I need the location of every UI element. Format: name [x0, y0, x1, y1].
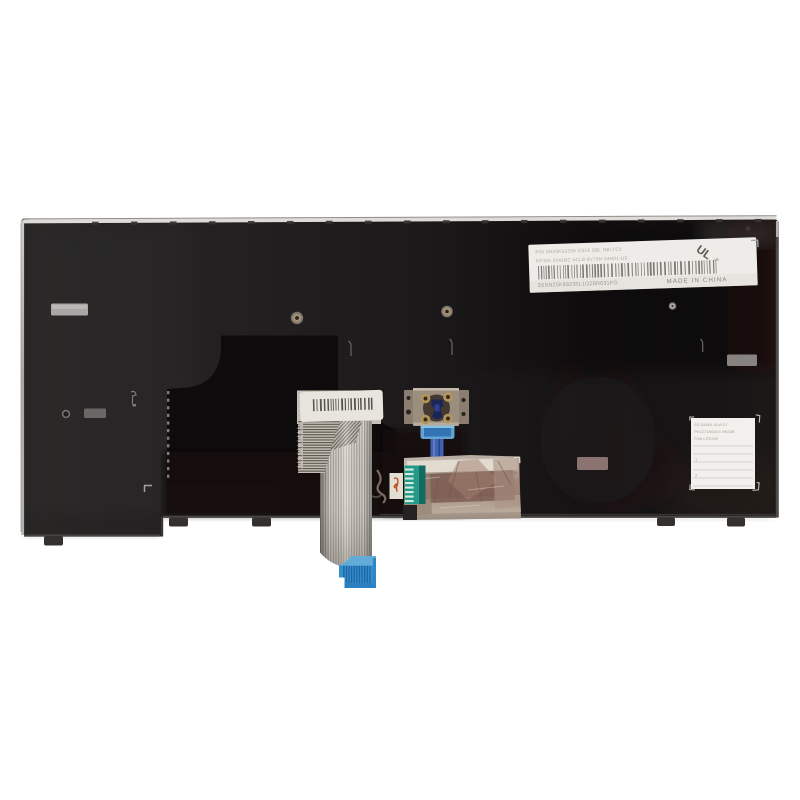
- svg-text:P/26 LITEON: P/26 LITEON: [694, 436, 718, 441]
- svg-text:SG-84500-XUA DT: SG-84500-XUA DT: [694, 422, 729, 427]
- svg-text:us: us: [714, 256, 718, 261]
- svg-text:PK1Z71N54XX 9N33B: PK1Z71N54XX 9N33B: [694, 429, 735, 434]
